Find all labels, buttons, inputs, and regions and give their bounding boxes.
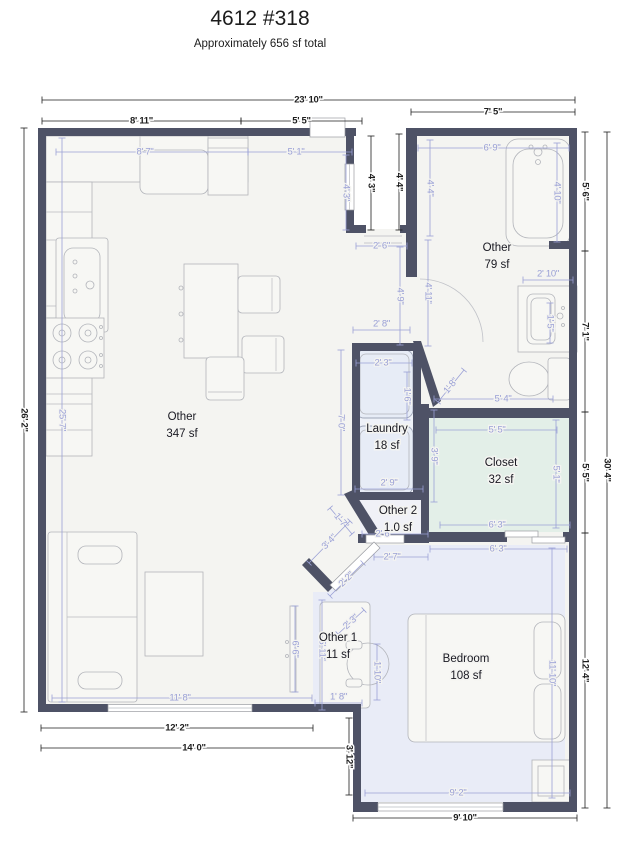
dimension-label: 6' 9" — [484, 143, 501, 154]
dimension-label: 3' 9" — [429, 448, 440, 465]
dimension-label: 2' 3" — [375, 358, 392, 369]
stove — [46, 318, 104, 378]
dimension-label: 2' 6" — [373, 241, 390, 252]
room-name: Other — [168, 411, 197, 423]
dimension-label: 6' 6" — [290, 641, 301, 658]
window — [378, 803, 503, 811]
floor-plan-page: 4612 #318 Approximately 656 sf total — [0, 0, 637, 845]
dimension: 4' 4" — [394, 134, 405, 230]
dimension-label: 5' 1" — [551, 466, 562, 483]
dimension-label: 2' 9" — [381, 478, 398, 489]
room-area: 347 sf — [166, 428, 198, 440]
dimension-label: 6' 3" — [490, 544, 507, 555]
dimension-label: 1' 6" — [402, 388, 413, 405]
dimension-label: 5' 5" — [580, 463, 591, 481]
dimension-label: 4' 4" — [394, 173, 405, 191]
dimension: 23' 10" — [42, 95, 575, 106]
pillow — [534, 684, 561, 739]
dimension-label: 7' 5" — [484, 107, 502, 118]
dimension-label: 8' 11" — [130, 116, 153, 127]
dimension-label: 4' 3" — [366, 174, 377, 192]
dimension: 4' 3" — [366, 136, 377, 230]
dimension-label: 12' 2" — [165, 723, 188, 734]
room-area: 11 sf — [326, 649, 351, 661]
dimension-label: 11' 10" — [547, 660, 558, 686]
room-name: Laundry — [366, 423, 408, 435]
toilet — [509, 358, 570, 400]
bed — [408, 614, 565, 742]
room-area: 32 sf — [489, 474, 515, 486]
dimension-label: 7' 0" — [336, 414, 347, 431]
dimension: 30' 4" — [602, 132, 613, 808]
dimension-label: 5' 1" — [288, 147, 305, 158]
dimension: 14' 0" — [41, 743, 347, 754]
dimension-label: 3' 12" — [344, 745, 355, 768]
dimension: 5' 6" — [580, 132, 591, 251]
dimension-label: 1' 10" — [372, 661, 383, 683]
dimension-label: 11' 8" — [169, 693, 190, 704]
fridge — [208, 138, 248, 195]
dimension-label: 5' 6" — [580, 182, 591, 200]
chair — [206, 357, 244, 400]
coffee-table — [145, 572, 203, 656]
room-name: Bedroom — [443, 653, 490, 665]
dimension: 7' 5" — [411, 107, 575, 118]
room-area: 18 sf — [375, 440, 401, 452]
dimension-label: 23' 10" — [294, 95, 322, 106]
dimension-label: 7' 1" — [580, 322, 591, 340]
dimension-label: 14' 0" — [182, 743, 205, 754]
chair — [238, 276, 280, 313]
nightstand — [532, 760, 570, 802]
dimension-label: 1' 8" — [330, 692, 347, 703]
room-area: 79 sf — [485, 259, 511, 271]
dimension-label: 2' 10" — [537, 269, 559, 280]
chair — [242, 336, 284, 373]
dimension-label: 9' 2" — [450, 788, 467, 799]
dimension-label: 5' 5" — [489, 425, 506, 436]
dimension: 5' 5" — [580, 412, 591, 533]
floor-plan: 23' 10"8' 11"5' 5"7' 5"4' 3"4' 4"5' 6"7'… — [0, 0, 637, 845]
dimension-label: 4' 10" — [552, 182, 563, 204]
room-name: Closet — [485, 457, 518, 469]
dimension-label: 2' 8" — [373, 319, 390, 330]
dimension-label: 5' 4" — [495, 394, 512, 405]
dimension-label: 4' 4" — [425, 180, 436, 197]
room-name: Other 2 — [379, 505, 417, 517]
sofa — [48, 532, 137, 702]
dimension: 12' 4" — [580, 533, 591, 808]
dimension-label: 25' 7" — [57, 409, 68, 431]
dimension-label: 30' 4" — [602, 458, 613, 481]
dimension-label: 5' 5" — [292, 116, 310, 127]
dimension: 12' 2" — [41, 723, 313, 734]
dimension-label: 1' 5" — [545, 315, 556, 332]
dimension-label: 26' 2" — [19, 408, 30, 431]
window — [108, 705, 252, 712]
dimension: 7' 1" — [580, 251, 591, 412]
dimension-label: 2' 7" — [384, 552, 401, 563]
room-name: Other — [483, 242, 512, 254]
room-area: 108 sf — [450, 670, 482, 682]
room-area: 1.0 sf — [384, 522, 413, 534]
dimension-label: 9' 10" — [453, 813, 476, 824]
dimension: 26' 2" — [19, 128, 30, 712]
dimension: 8' 11" — [42, 116, 241, 127]
dimension: 3' 12" — [344, 718, 355, 795]
dimension-label: 4' 11" — [423, 282, 434, 303]
dimension-label: 4' 9" — [395, 288, 406, 305]
room-name: Other 1 — [319, 632, 357, 644]
dimension-label: 12' 4" — [580, 659, 591, 682]
dimension-label: 4' 3" — [341, 184, 352, 201]
dimension-label: 8' 7" — [137, 147, 154, 158]
dimension: 9' 10" — [353, 813, 577, 824]
dimension-label: 6' 3" — [489, 520, 506, 531]
